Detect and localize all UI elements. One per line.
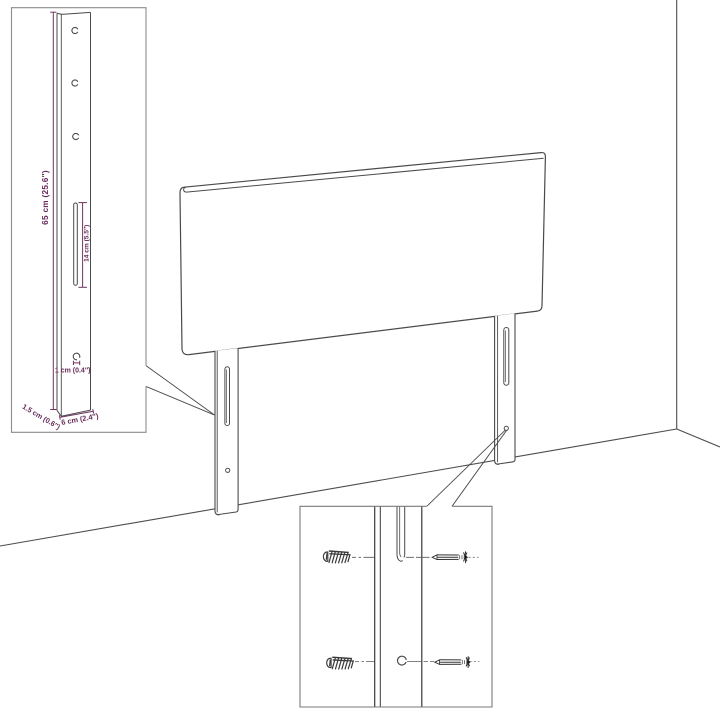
svg-text:1 cm (0.4″): 1 cm (0.4″) (55, 367, 91, 374)
svg-text:65 cm (25.6″): 65 cm (25.6″) (41, 170, 50, 225)
svg-text:14 cm (5.5″): 14 cm (5.5″) (84, 225, 91, 262)
